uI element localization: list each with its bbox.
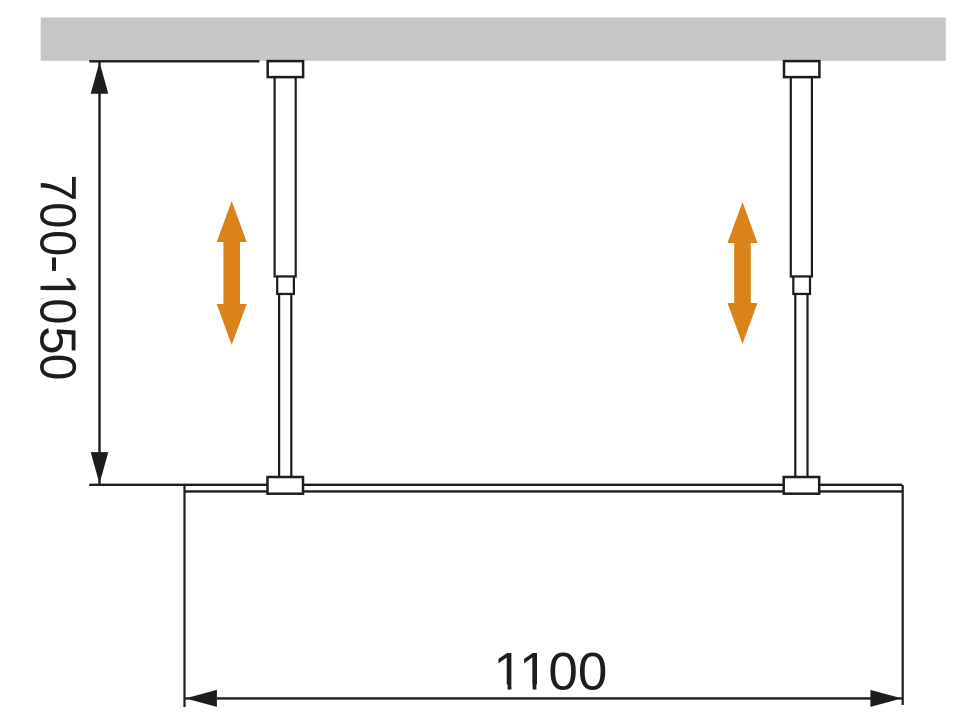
svg-text:0: 0 (29, 202, 85, 228)
svg-text:-: - (29, 255, 86, 273)
svg-text:1: 1 (29, 274, 86, 301)
svg-text:0: 0 (29, 354, 86, 381)
svg-text:0: 0 (29, 230, 85, 256)
svg-text:0: 0 (29, 298, 85, 324)
svg-text:7: 7 (29, 174, 86, 201)
svg-text:5: 5 (29, 326, 86, 354)
svg-text:1100: 1100 (493, 643, 607, 702)
